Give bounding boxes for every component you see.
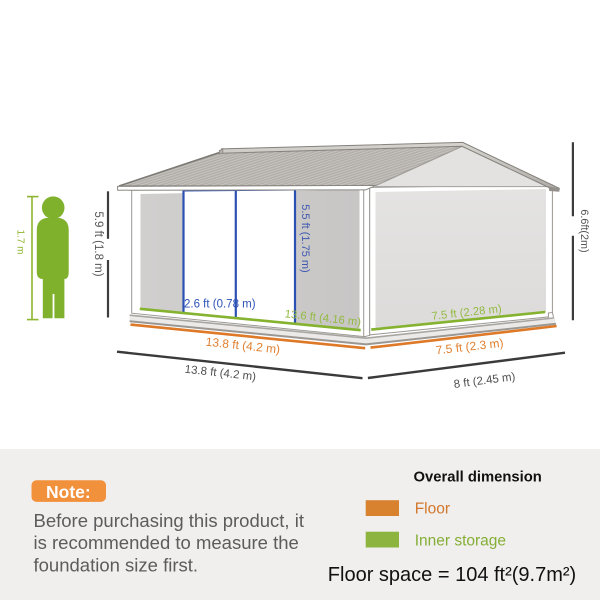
- svg-text:foundation size first.: foundation size first.: [34, 554, 199, 575]
- svg-text:1.7 m: 1.7 m: [15, 229, 26, 254]
- svg-text:Floor: Floor: [415, 501, 450, 518]
- svg-text:is recommended to measure the: is recommended to measure the: [34, 532, 299, 553]
- svg-text:2.6 ft (0.78 m): 2.6 ft (0.78 m): [184, 299, 256, 311]
- svg-text:5.5 ft (1.75 m): 5.5 ft (1.75 m): [299, 204, 311, 272]
- svg-text:6.6ft(2m): 6.6ft(2m): [578, 209, 590, 252]
- svg-text:Overall dimension: Overall dimension: [414, 470, 542, 486]
- svg-text:5.9 ft (1.8 m): 5.9 ft (1.8 m): [92, 211, 104, 276]
- svg-text:Before purchasing this product: Before purchasing this product, it: [34, 510, 304, 531]
- svg-text:Note:: Note:: [46, 482, 91, 502]
- svg-text:Floor space = 104 ft²(9.7m²): Floor space = 104 ft²(9.7m²): [328, 564, 576, 586]
- svg-text:Inner storage: Inner storage: [415, 533, 506, 550]
